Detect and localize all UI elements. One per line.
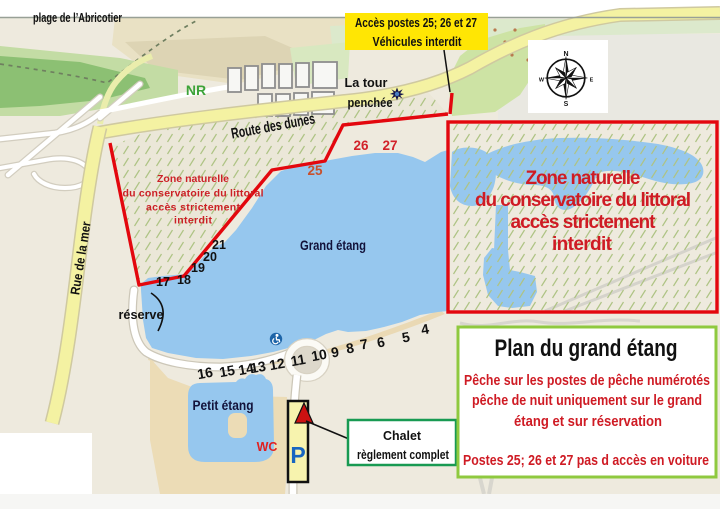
svg-text:20: 20 [203, 250, 217, 264]
svg-text:pêche de nuit uniquement sur l: pêche de nuit uniquement sur le grand [472, 392, 702, 409]
svg-text:27: 27 [382, 138, 397, 153]
svg-text:10: 10 [310, 346, 328, 364]
svg-text:accès strictement: accès strictement [511, 212, 657, 233]
svg-text:Véhicules interdit: Véhicules interdit [373, 34, 463, 49]
svg-text:16: 16 [196, 364, 214, 382]
svg-text:17: 17 [156, 275, 170, 289]
svg-text:réserve: réserve [119, 307, 164, 322]
svg-text:25: 25 [307, 163, 323, 178]
svg-text:Petit étang: Petit étang [193, 398, 254, 413]
svg-text:WC: WC [257, 440, 278, 454]
svg-text:12: 12 [268, 355, 286, 373]
svg-text:étang et sur réservation: étang et sur réservation [514, 413, 662, 430]
svg-text:15: 15 [218, 362, 236, 380]
svg-text:W: W [539, 78, 545, 84]
svg-text:S: S [564, 101, 569, 108]
svg-text:11: 11 [289, 351, 307, 369]
svg-text:21: 21 [212, 238, 226, 252]
svg-text:interdit: interdit [174, 215, 213, 227]
svg-text:interdit: interdit [552, 234, 613, 255]
svg-text:Plan du grand étang: Plan du grand étang [495, 335, 678, 362]
svg-text:N: N [563, 51, 568, 58]
svg-text:accès strictement: accès strictement [146, 202, 241, 214]
svg-text:Zone naturelle: Zone naturelle [157, 173, 229, 185]
svg-text:Grand étang: Grand étang [300, 238, 366, 253]
svg-text:règlement complet: règlement complet [357, 448, 450, 462]
svg-text:Zone naturelle: Zone naturelle [526, 168, 641, 189]
svg-text:P: P [290, 442, 305, 468]
svg-text:plage de l’Abricotier: plage de l’Abricotier [33, 10, 122, 25]
svg-text:Postes 25; 26 et 27 pas d accè: Postes 25; 26 et 27 pas d accès en voitu… [463, 452, 709, 469]
svg-text:E: E [590, 78, 594, 84]
svg-text:La tour: La tour [345, 75, 388, 90]
svg-text:Chalet: Chalet [383, 429, 422, 443]
svg-text:penchée: penchée [348, 95, 393, 110]
svg-text:18: 18 [177, 273, 191, 287]
svg-text:du conservatoire du littoral: du conservatoire du littoral [475, 190, 691, 211]
svg-text:Accès postes 25; 26 et 27: Accès postes 25; 26 et 27 [355, 15, 477, 30]
svg-text:NR: NR [186, 82, 206, 98]
svg-text:13: 13 [249, 358, 267, 376]
svg-text:Pêche sur les postes de pêche: Pêche sur les postes de pêche numérotés [464, 372, 710, 389]
svg-text:du conservatoire du littoral: du conservatoire du littoral [123, 188, 264, 200]
svg-text:26: 26 [353, 138, 369, 153]
